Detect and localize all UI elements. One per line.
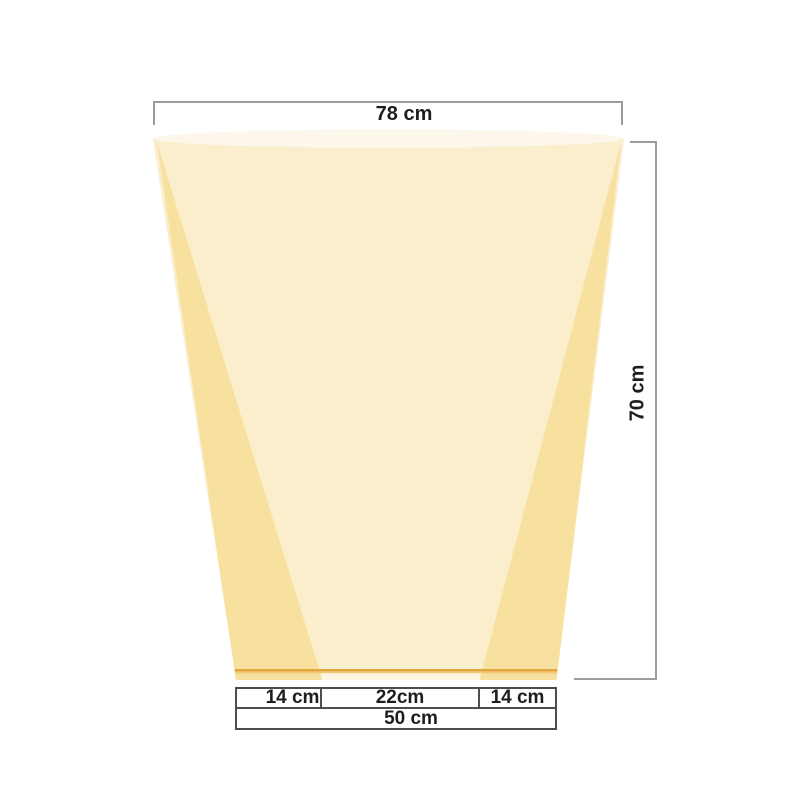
- dim-cell-bottom-middle: 22cm: [322, 689, 480, 707]
- dim-top-width-label: 78 cm: [171, 103, 637, 125]
- dim-cell-bottom-left: 14 cm: [235, 689, 322, 707]
- bottom-trim-line: [235, 669, 557, 671]
- dim-bottom-right-label: 14 cm: [491, 687, 545, 709]
- dim-bracket-height-tick-top: [630, 141, 657, 143]
- bottom-trim-highlight: [235, 671, 557, 673]
- dim-bottom-left-label: 14 cm: [266, 687, 320, 709]
- dim-bracket-height-tick-bottom: [574, 678, 657, 680]
- dim-bracket-height-line: [655, 141, 657, 680]
- top-surface-ellipse: [153, 129, 624, 148]
- dimension-diagram: 78 cm 70 cm 14 cm 22cm 14 cm 50 cm: [0, 0, 800, 800]
- dim-bottom-middle-label: 22cm: [376, 687, 425, 709]
- dim-row-bottom-segments: 14 cm 22cm 14 cm: [235, 687, 557, 707]
- dim-bracket-top-width: 78 cm: [153, 101, 623, 125]
- dim-height-label: 70 cm: [628, 351, 648, 436]
- hem-inner-band: [321, 673, 482, 680]
- dim-cell-bottom-right: 14 cm: [480, 689, 557, 707]
- dim-bottom-total-label: 50 cm: [384, 708, 438, 730]
- dim-row-bottom-total: 50 cm: [235, 707, 557, 730]
